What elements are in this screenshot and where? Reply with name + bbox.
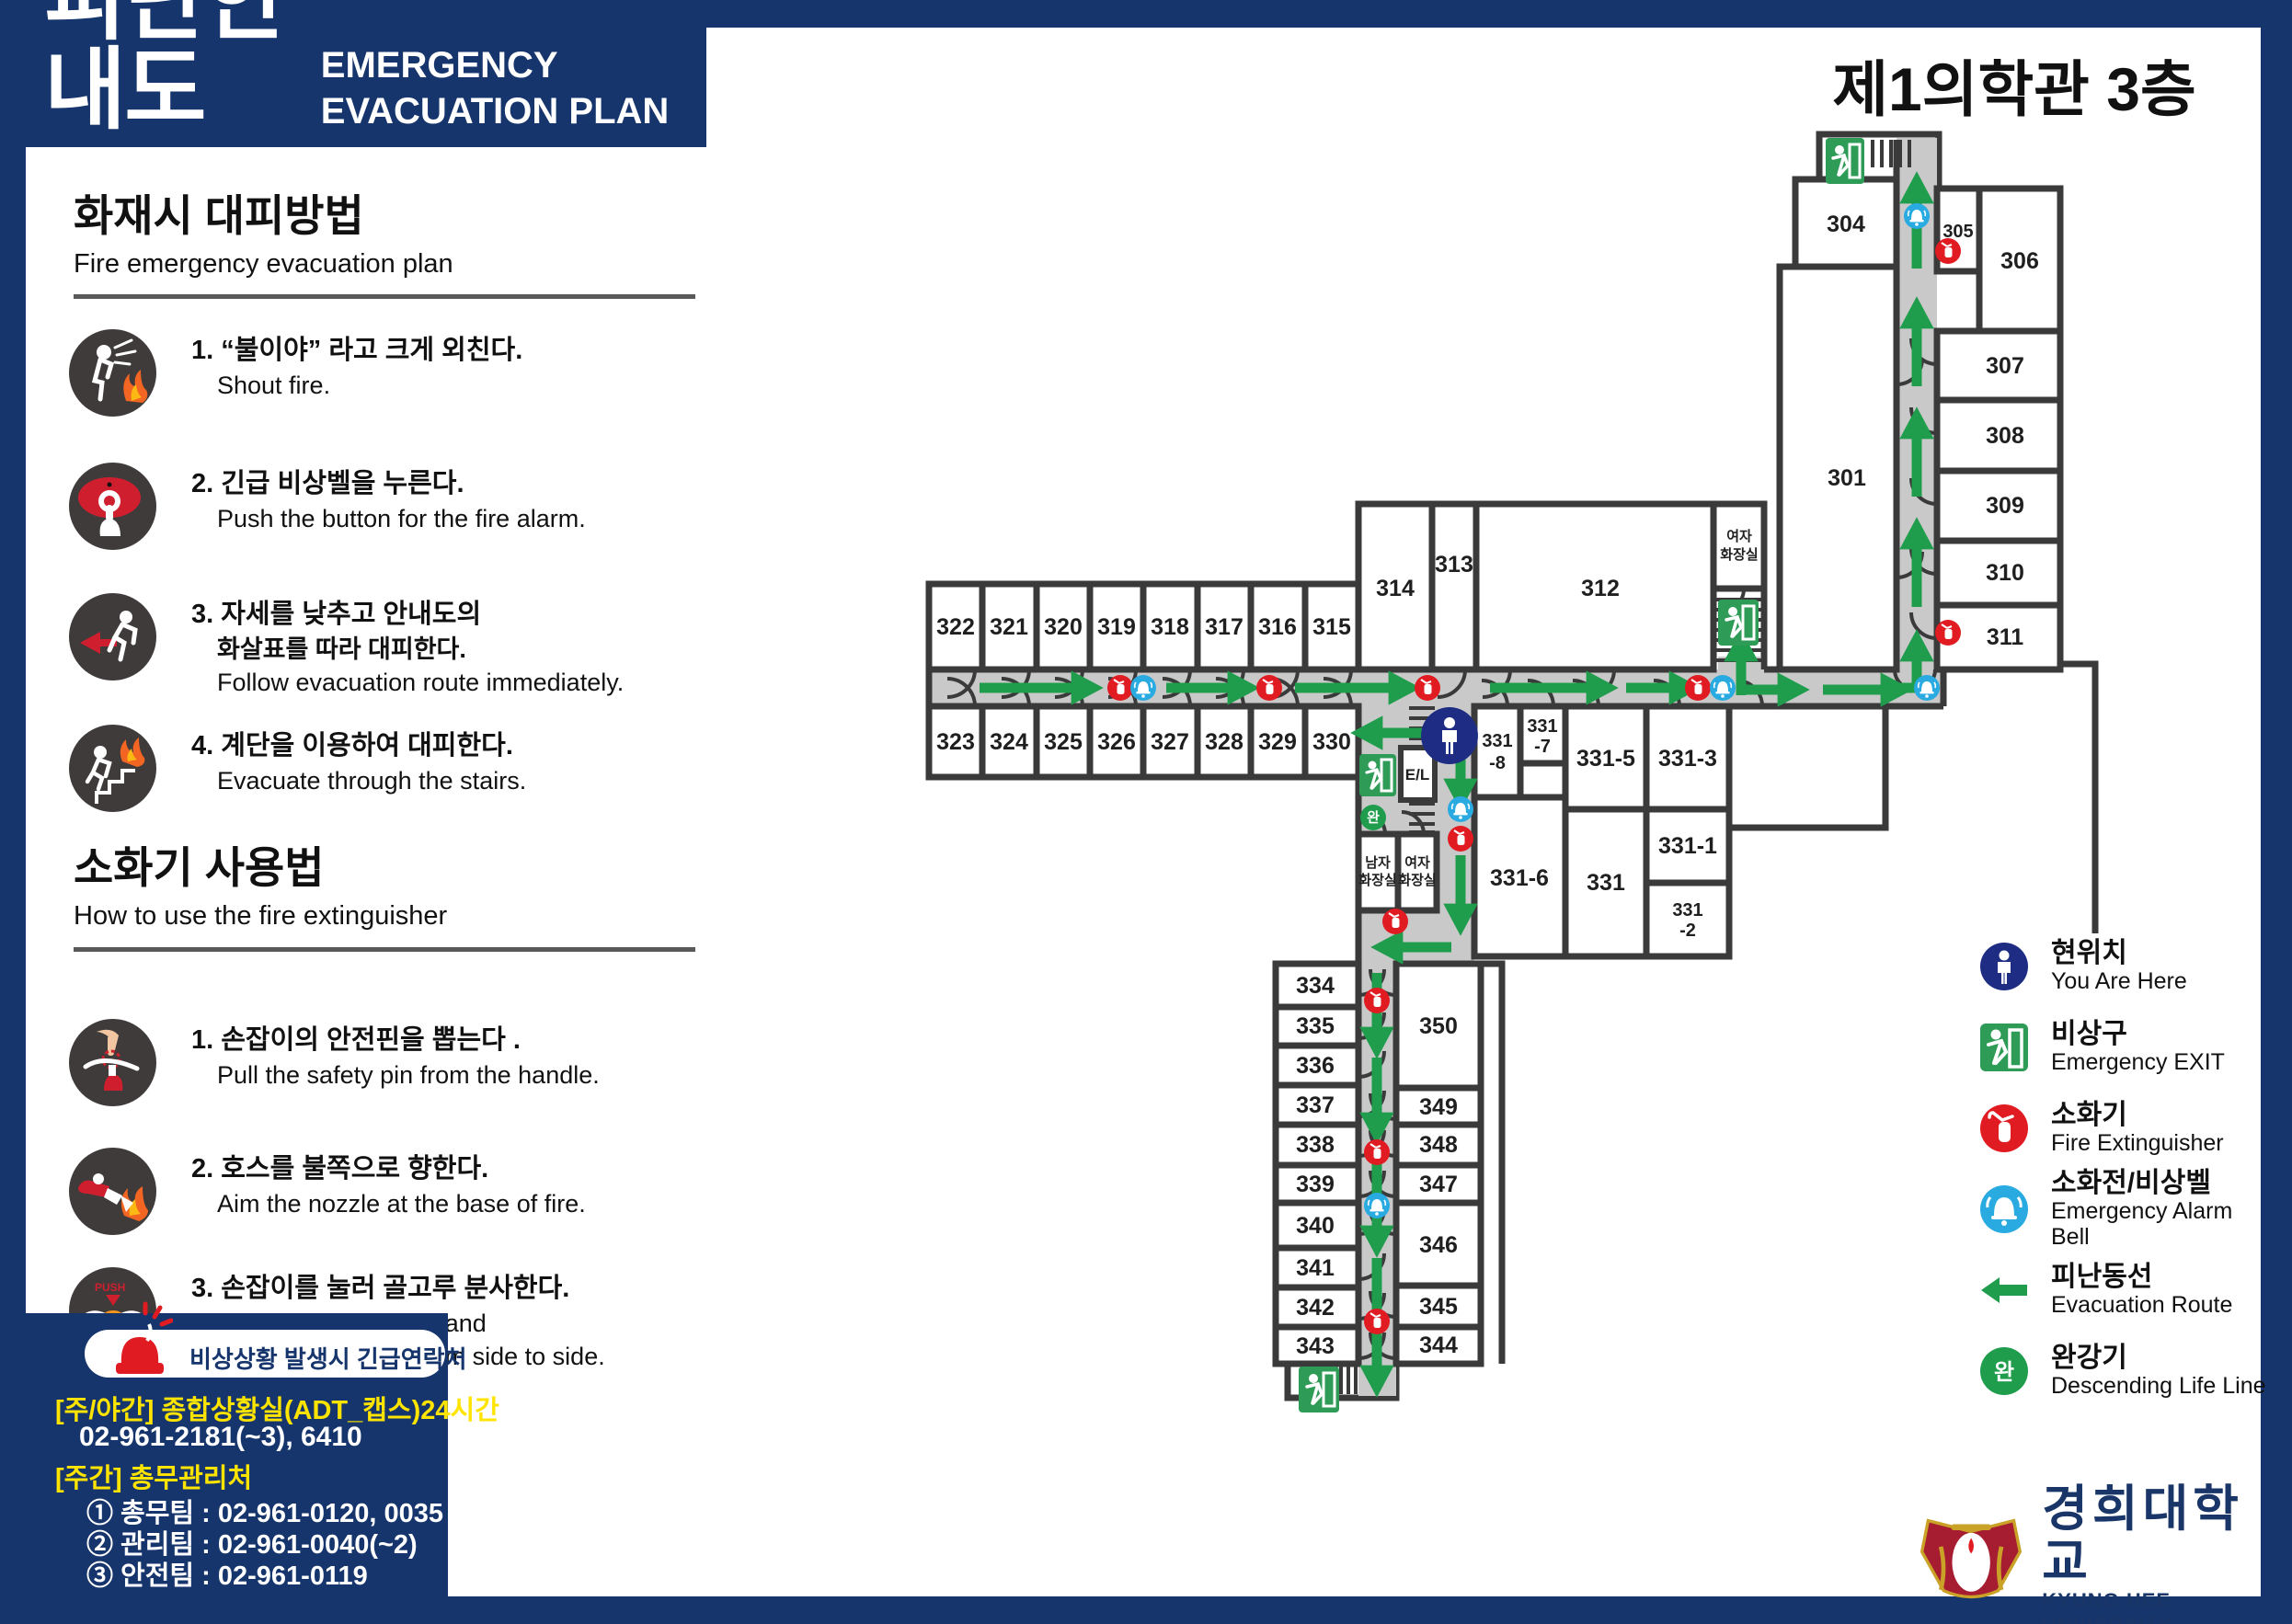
- follow-route-icon: [69, 593, 156, 680]
- legend: 현위치You Are Here 비상구Emergency EXIT 소화기Fir…: [1977, 940, 2272, 1425]
- contact-line-2: [주간] 총무관리처: [55, 1457, 252, 1495]
- svg-text:305: 305: [1942, 222, 1973, 242]
- contact-phone-1: 02-961-2181(~3), 6410: [79, 1422, 362, 1453]
- evacuation-plan-page: E/L: [0, 0, 2292, 1624]
- aim-nozzle-icon: [69, 1148, 156, 1235]
- building-title: 제1의학관 3층: [1775, 40, 2253, 129]
- evacuation-step-4: 4. 계단을 이용하여 대피한다. Evacuate through the s…: [69, 725, 704, 812]
- svg-text:317: 317: [1205, 614, 1243, 640]
- legend-emergency-exit: 비상구Emergency EXIT: [1977, 1021, 2272, 1074]
- university-name-en: KYUNG HEE UNIVERSITY: [2042, 1589, 2292, 1624]
- svg-text:348: 348: [1419, 1132, 1458, 1158]
- evacuation-step-1: 1. “불이야” 라고 크게 외친다. Shout fire.: [69, 329, 704, 417]
- svg-text:321: 321: [990, 614, 1028, 640]
- svg-text:336: 336: [1296, 1053, 1335, 1079]
- svg-text:331-6: 331-6: [1490, 865, 1549, 891]
- page-title-en: EMERGENCY EVACUATION PLAN: [321, 42, 706, 134]
- svg-text:331-1: 331-1: [1658, 833, 1717, 859]
- svg-text:330: 330: [1312, 729, 1351, 755]
- evacuation-step-2: 2. 긴급 비상벨을 누른다. Push the button for the …: [69, 463, 704, 550]
- svg-text:334: 334: [1296, 973, 1335, 999]
- descending-life-line-icon: 완: [1977, 1344, 2031, 1398]
- svg-text:308: 308: [1986, 423, 2024, 449]
- svg-text:331-3: 331-3: [1658, 746, 1717, 772]
- svg-text:323: 323: [936, 729, 975, 755]
- university-crest-icon: [1915, 1509, 2027, 1610]
- svg-text:347: 347: [1419, 1172, 1458, 1197]
- svg-text:-2: -2: [1679, 921, 1696, 941]
- svg-text:여자: 여자: [1726, 529, 1752, 544]
- svg-text:339: 339: [1296, 1172, 1335, 1197]
- extinguisher-step-1: 1. 손잡이의 안전핀을 뽑는다 . Pull the safety pin f…: [69, 1019, 704, 1106]
- header: 피난안내도 EMERGENCY EVACUATION PLAN: [0, 0, 706, 147]
- shout-fire-icon: [69, 329, 156, 417]
- legend-evacuation-route: 피난동선Evacuation Route: [1977, 1264, 2272, 1317]
- legend-descending-life-line: 완 완강기Descending Life Line: [1977, 1344, 2272, 1398]
- svg-text:335: 335: [1296, 1013, 1335, 1039]
- svg-text:349: 349: [1419, 1094, 1458, 1120]
- svg-text:316: 316: [1258, 614, 1297, 640]
- svg-text:311: 311: [1987, 624, 2023, 650]
- svg-text:313: 313: [1435, 552, 1473, 578]
- svg-text:315: 315: [1312, 614, 1351, 640]
- page-border-left: [0, 0, 26, 1624]
- you-are-here-icon: [1421, 707, 1478, 764]
- svg-text:-8: -8: [1489, 753, 1506, 773]
- contact-title: 비상상황 발생시 긴급연락처: [189, 1341, 467, 1375]
- svg-text:328: 328: [1205, 729, 1243, 755]
- svg-text:318: 318: [1151, 614, 1189, 640]
- alarm-bell-icon: [1977, 1183, 2031, 1236]
- svg-text:344: 344: [1419, 1332, 1458, 1358]
- extinguisher-title: 소화기 사용법 How to use the fire extinguisher: [74, 832, 447, 932]
- siren-icon: [107, 1293, 173, 1378]
- svg-text:남자: 남자: [1365, 855, 1391, 871]
- svg-text:314: 314: [1376, 576, 1415, 601]
- university-logo: 경희대학교 KYUNG HEE UNIVERSITY: [1915, 1482, 2292, 1624]
- svg-text:301: 301: [1828, 465, 1866, 491]
- svg-text:331: 331: [1482, 731, 1512, 751]
- contact-team-3: ③ 안전팀 : 02-961-0119: [86, 1554, 368, 1593]
- divider: [74, 947, 695, 952]
- university-name-ko: 경희대학교: [2042, 1482, 2292, 1589]
- svg-text:345: 345: [1419, 1294, 1458, 1320]
- svg-text:329: 329: [1258, 729, 1297, 755]
- svg-text:327: 327: [1151, 729, 1189, 755]
- svg-text:331: 331: [1672, 900, 1702, 921]
- svg-text:-7: -7: [1534, 737, 1551, 757]
- svg-text:350: 350: [1419, 1013, 1458, 1039]
- fire-evacuation-title: 화재시 대피방법 Fire emergency evacuation plan: [74, 180, 453, 280]
- legend-you-are-here: 현위치You Are Here: [1977, 940, 2272, 993]
- svg-text:완: 완: [1367, 810, 1380, 826]
- svg-text:화장실: 화장실: [1358, 872, 1396, 888]
- svg-text:PUSH: PUSH: [95, 1281, 125, 1294]
- svg-text:화장실: 화장실: [1720, 546, 1758, 563]
- svg-text:304: 304: [1827, 212, 1865, 237]
- svg-text:307: 307: [1986, 353, 2024, 379]
- svg-text:306: 306: [2000, 248, 2039, 274]
- svg-text:326: 326: [1097, 729, 1136, 755]
- fire-extinguisher-icon: [1977, 1102, 2031, 1155]
- you-are-here-icon: [1977, 940, 2031, 993]
- evacuation-step-3: 3. 자세를 낮추고 안내도의 화살표를 따라 대피한다. Follow eva…: [69, 593, 704, 699]
- extinguisher-step-2: 2. 호스를 불쪽으로 향한다. Aim the nozzle at the b…: [69, 1148, 704, 1235]
- legend-fire-extinguisher: 소화기Fire Extinguisher: [1977, 1102, 2272, 1155]
- svg-text:312: 312: [1581, 576, 1620, 601]
- svg-text:화장실: 화장실: [1398, 872, 1436, 888]
- svg-text:310: 310: [1986, 560, 2024, 586]
- evacuation-route-icon: [1977, 1264, 2031, 1317]
- svg-text:340: 340: [1296, 1213, 1335, 1239]
- emergency-contact-panel: 비상상황 발생시 긴급연락처 [주/야간] 종합상황실(ADT_캡스)24시간 …: [26, 1313, 448, 1624]
- svg-text:여자: 여자: [1404, 855, 1430, 871]
- divider: [74, 294, 695, 299]
- pull-pin-icon: [69, 1019, 156, 1106]
- svg-text:346: 346: [1419, 1232, 1458, 1258]
- stairs-evacuation-icon: [69, 725, 156, 812]
- svg-text:322: 322: [936, 614, 975, 640]
- svg-text:324: 324: [990, 729, 1028, 755]
- svg-text:338: 338: [1296, 1132, 1335, 1158]
- emergency-exit-icon: [1977, 1021, 2031, 1074]
- svg-text:320: 320: [1044, 614, 1083, 640]
- svg-text:342: 342: [1296, 1295, 1335, 1321]
- svg-text:337: 337: [1296, 1092, 1335, 1118]
- page-title: 피난안내도: [44, 0, 304, 134]
- svg-text:309: 309: [1986, 493, 2024, 519]
- svg-text:331: 331: [1527, 716, 1557, 737]
- svg-text:완: 완: [1994, 1360, 2014, 1385]
- descending-life-line-icon: 완: [1360, 805, 1386, 830]
- legend-alarm-bell: 소화전/비상벨Emergency Alarm Bell: [1977, 1183, 2272, 1236]
- alarm-button-icon: [69, 463, 156, 550]
- svg-text:319: 319: [1097, 614, 1136, 640]
- elevator-label: E/L: [1405, 766, 1429, 783]
- svg-text:331-5: 331-5: [1576, 746, 1635, 772]
- svg-text:325: 325: [1044, 729, 1083, 755]
- svg-text:341: 341: [1296, 1255, 1335, 1281]
- svg-text:331: 331: [1587, 870, 1625, 896]
- svg-text:343: 343: [1296, 1333, 1335, 1359]
